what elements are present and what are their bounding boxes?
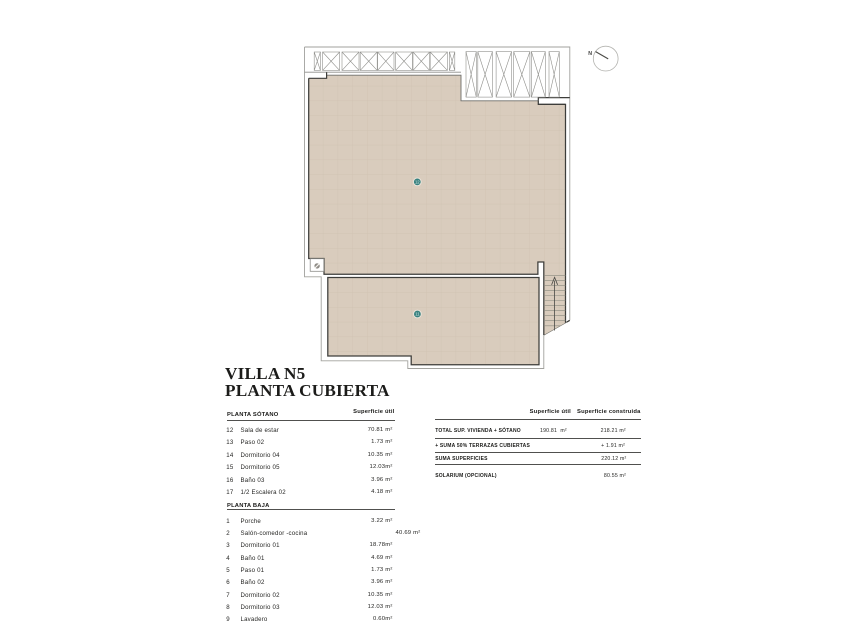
svg-text:12: 12 xyxy=(415,179,420,184)
svg-text:N: N xyxy=(588,51,592,57)
svg-text:11: 11 xyxy=(415,312,420,317)
